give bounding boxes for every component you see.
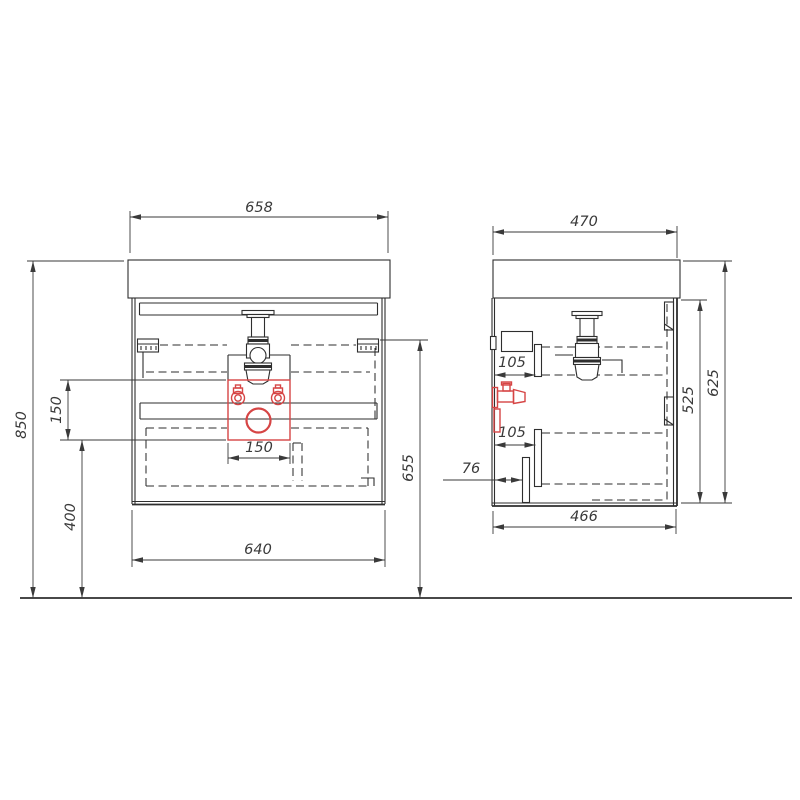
dimension-carcass-height: 525 xyxy=(681,300,707,503)
supply-valve-right xyxy=(272,385,285,405)
dimension-connection-box-width: 150 xyxy=(228,440,290,464)
side-bottom-bar xyxy=(523,458,530,503)
side-siphon xyxy=(572,312,602,381)
dim-label-625: 625 xyxy=(706,369,722,397)
dimension-overall-height: 850 xyxy=(14,261,124,598)
dim-label-466: 466 xyxy=(570,509,598,525)
dimension-side-body-depth: 466 xyxy=(493,509,676,534)
front-countertop xyxy=(128,260,390,298)
vanity-installation-drawing: 658 850 150 400 655 640 150 xyxy=(0,0,800,800)
side-lower-rail xyxy=(535,430,542,487)
front-waste-pipe-hidden xyxy=(293,443,302,481)
dim-label-150-left: 150 xyxy=(49,396,65,424)
front-connection-zone xyxy=(228,380,290,440)
side-countertop xyxy=(493,260,680,298)
dimension-front-body-width: 640 xyxy=(132,510,385,567)
front-view xyxy=(128,260,390,505)
drain-outlet-hole xyxy=(247,409,271,433)
dimension-side-overall-height: 625 xyxy=(681,261,732,503)
dimension-upper-slide-offset: 105 xyxy=(495,355,536,375)
siphon-neck xyxy=(252,318,265,338)
dimension-connection-zone-height: 150 xyxy=(49,380,226,440)
side-upper-rail xyxy=(535,345,542,377)
dim-label-76: 76 xyxy=(462,461,480,477)
dimension-zone-floor-offset: 400 xyxy=(63,440,82,598)
side-slide-housing xyxy=(502,332,533,352)
connection-box xyxy=(228,380,290,440)
dim-label-400: 400 xyxy=(63,503,79,531)
side-wall-bracket-upper xyxy=(665,302,674,330)
siphon-union-nut xyxy=(250,348,266,364)
side-drawer-notch-right xyxy=(602,360,622,373)
front-drawer-divider xyxy=(140,403,377,419)
technical-drawing-canvas: 658 850 150 400 655 640 150 xyxy=(0,0,800,800)
dim-label-640: 640 xyxy=(244,542,272,558)
dimension-front-top-width: 658 xyxy=(130,200,388,253)
dim-label-105-upper: 105 xyxy=(498,355,526,371)
dimension-side-top-depth: 470 xyxy=(493,214,677,258)
dim-label-105-lower: 105 xyxy=(498,425,526,441)
side-wall-clip xyxy=(491,337,497,350)
dimension-slide-height: 655 xyxy=(380,340,428,598)
dim-label-655: 655 xyxy=(401,454,417,482)
dim-label-470: 470 xyxy=(570,214,598,230)
front-siphon xyxy=(242,311,274,385)
drain-flange xyxy=(242,311,274,315)
dim-label-525: 525 xyxy=(681,386,697,414)
dimension-lower-slide-offset: 105 xyxy=(495,425,536,445)
dimension-bottom-clearance: 76 xyxy=(443,461,522,480)
side-hidden-lines xyxy=(542,304,667,500)
front-lower-drawer-outline xyxy=(146,428,374,486)
dim-label-850: 850 xyxy=(14,411,30,439)
side-wall-bracket-lower xyxy=(665,397,674,425)
front-left-slide-bracket xyxy=(138,339,159,352)
supply-valve-left xyxy=(232,385,245,405)
siphon-cup xyxy=(246,370,270,384)
dim-label-150-box: 150 xyxy=(245,440,273,456)
side-view xyxy=(491,260,681,506)
dim-label-658: 658 xyxy=(245,200,273,216)
